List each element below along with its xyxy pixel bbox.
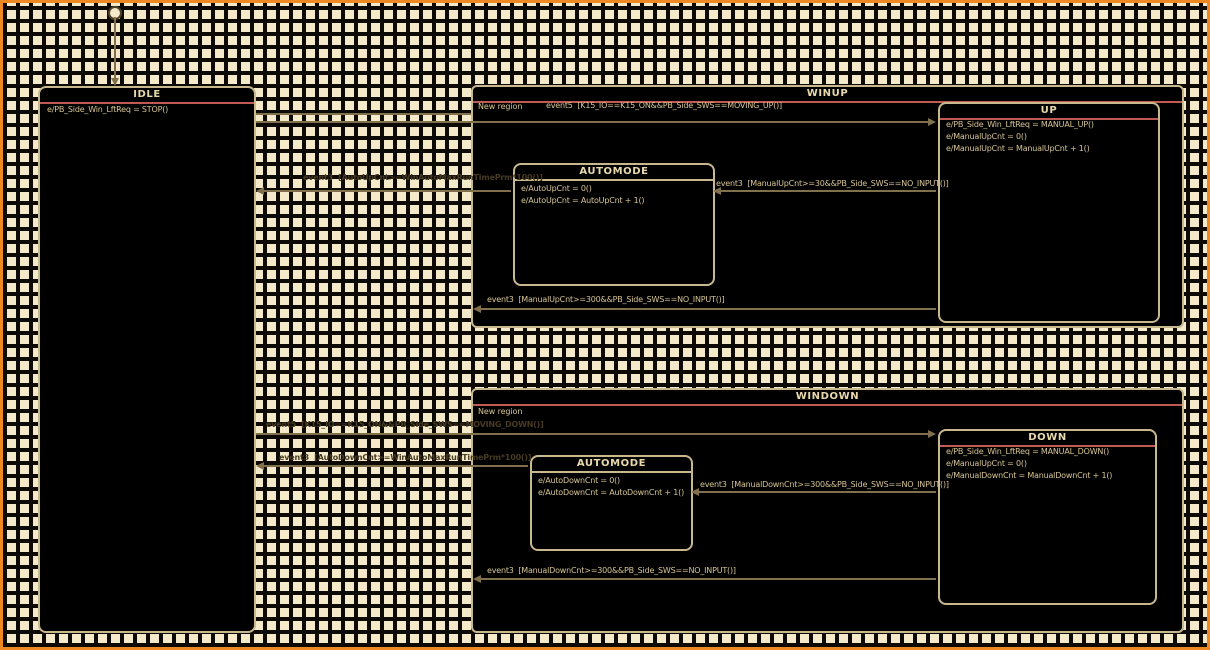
state-down-action-3: e/ManualDownCnt = ManualDownCnt + 1() <box>946 470 1112 482</box>
transition-idle-to-up[interactable] <box>256 121 928 123</box>
state-windown-automode[interactable]: AUTOMODE e/AutoDownCnt = 0() e/AutoDownC… <box>530 455 693 551</box>
winup-automode-action-1: e/AutoUpCnt = 0() <box>521 183 592 195</box>
arrowhead-icon <box>928 118 936 126</box>
statechart-canvas[interactable]: IDLE e/PB_Side_Win_LftReq = STOP() WINUP… <box>0 0 1210 650</box>
state-up-action-1: e/PB_Side_Win_LftReq = MANUAL_UP() <box>946 119 1094 131</box>
state-down-action-1: e/PB_Side_Win_LftReq = MANUAL_DOWN() <box>946 446 1109 458</box>
windown-automode-action-2: e/AutoDownCnt = AutoDownCnt + 1() <box>538 487 684 499</box>
label-winup-exit: event3 [ManualUpCnt>=300&&PB_Side_SWS==N… <box>487 295 724 304</box>
state-idle[interactable]: IDLE e/PB_Side_Win_LftReq = STOP() <box>38 86 256 633</box>
arrowhead-icon <box>473 575 481 583</box>
label-winup-automode-to-idle: event3 [AutoUpCnt>=WinAutoMaxRunTimePrm*… <box>303 173 543 182</box>
arrowhead-icon <box>473 305 481 313</box>
transition-idle-to-down[interactable] <box>256 433 928 435</box>
transition-windown-automode-to-idle[interactable] <box>263 465 528 467</box>
state-windown[interactable]: WINDOWN New region DOWN e/PB_Side_Win_Lf… <box>471 388 1184 633</box>
label-up-to-automode: event3 [ManualUpCnt>=30&&PB_Side_SWS==NO… <box>716 179 949 188</box>
state-down-action-2: e/ManualUpCnt = 0() <box>946 458 1027 470</box>
state-down[interactable]: DOWN e/PB_Side_Win_LftReq = MANUAL_DOWN(… <box>938 429 1157 605</box>
transition-up-to-automode[interactable] <box>720 190 936 192</box>
winup-region-label: New region <box>478 102 522 111</box>
transition-down-to-automode[interactable] <box>698 491 936 493</box>
label-windown-exit: event3 [ManualDownCnt>=300&&PB_Side_SWS=… <box>487 566 736 575</box>
state-windown-title: WINDOWN <box>473 390 1182 406</box>
arrowhead-icon <box>691 488 699 496</box>
state-up-title: UP <box>940 104 1158 120</box>
state-winup-automode[interactable]: AUTOMODE e/AutoUpCnt = 0() e/AutoUpCnt =… <box>513 163 715 286</box>
transition-winup-automode-to-idle[interactable] <box>263 190 511 192</box>
state-up-action-3: e/ManualUpCnt = ManualUpCnt + 1() <box>946 143 1090 155</box>
transition-initial-to-idle[interactable] <box>114 17 116 79</box>
label-windown-automode-to-idle: event3 [AutoDownCnt>=WinAutoMaxRunTimePr… <box>279 453 531 462</box>
transition-winup-exit[interactable] <box>480 308 936 310</box>
winup-automode-action-2: e/AutoUpCnt = AutoUpCnt + 1() <box>521 195 644 207</box>
arrowhead-icon <box>111 78 119 86</box>
transition-idle-to-winup-stub[interactable] <box>256 113 471 115</box>
windown-region-label: New region <box>478 407 522 416</box>
state-down-title: DOWN <box>940 431 1155 447</box>
state-idle-entry-action: e/PB_Side_Win_LftReq = STOP() <box>47 104 168 116</box>
label-down-to-automode: event3 [ManualDownCnt>=300&&PB_Side_SWS=… <box>700 480 949 489</box>
state-winup-automode-title: AUTOMODE <box>515 165 713 181</box>
label-idle-to-down: event5 [K15_IO==K15_ON&&PB_Side_SWS==MOV… <box>266 420 544 429</box>
arrowhead-icon <box>256 187 264 195</box>
label-idle-to-up: event5 [K15_IO==K15_ON&&PB_Side_SWS==MOV… <box>546 101 782 110</box>
state-windown-automode-title: AUTOMODE <box>532 457 691 473</box>
transition-windown-exit[interactable] <box>480 578 936 580</box>
state-idle-title: IDLE <box>40 88 254 104</box>
arrowhead-icon <box>928 430 936 438</box>
arrowhead-icon <box>713 187 721 195</box>
state-up[interactable]: UP e/PB_Side_Win_LftReq = MANUAL_UP() e/… <box>938 102 1160 323</box>
windown-automode-action-1: e/AutoDownCnt = 0() <box>538 475 620 487</box>
state-up-action-2: e/ManualUpCnt = 0() <box>946 131 1027 143</box>
arrowhead-icon <box>256 462 264 470</box>
